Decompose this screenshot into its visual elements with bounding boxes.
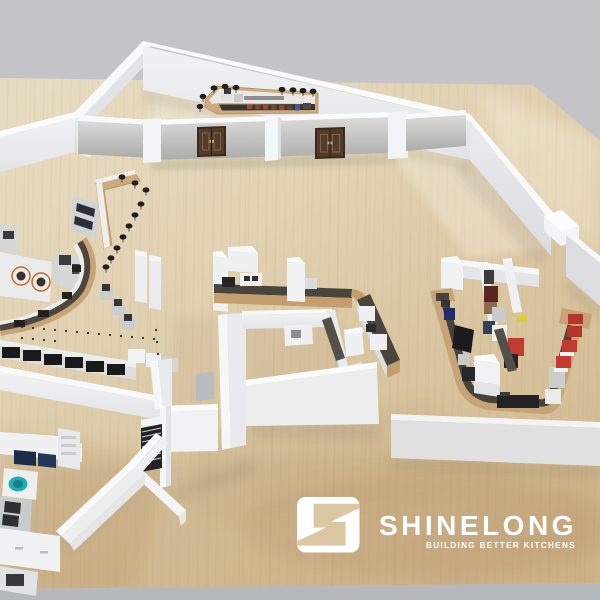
svg-text:BUILDING BETTER KITCHENS: BUILDING BETTER KITCHENS bbox=[426, 541, 576, 550]
svg-text:SHINELONG: SHINELONG bbox=[379, 510, 577, 541]
